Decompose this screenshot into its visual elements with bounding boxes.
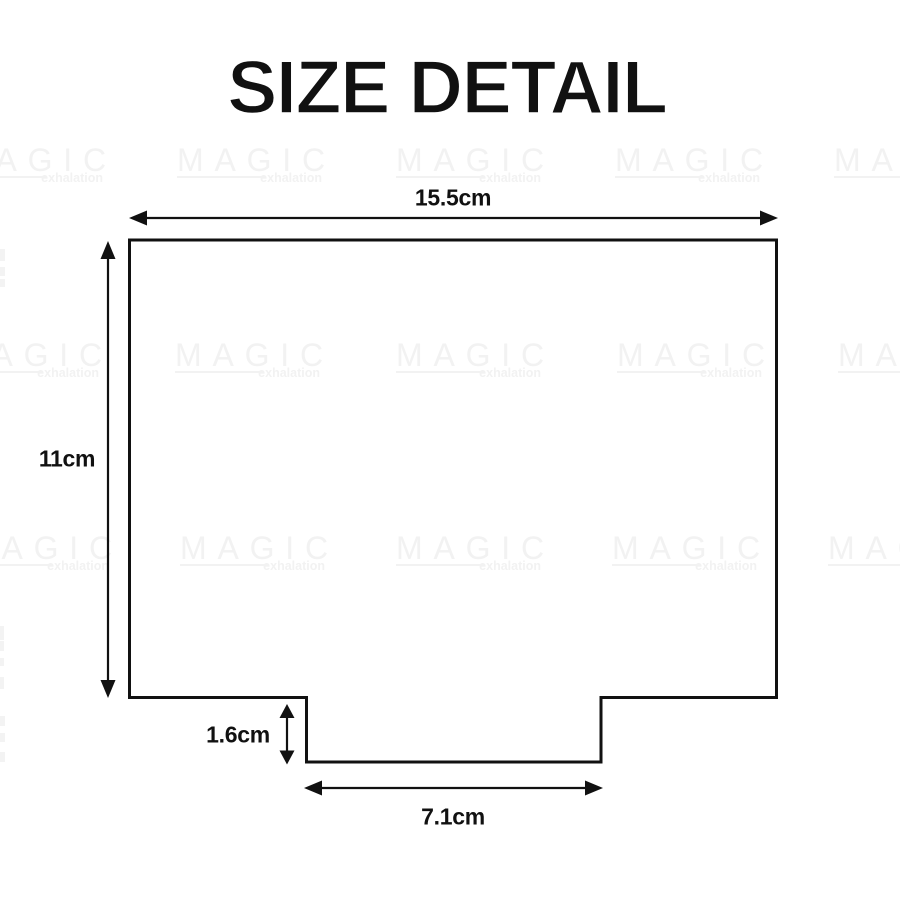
svg-text:11cm: 11cm [39,446,95,472]
svg-text:exhalation: exhalation [37,366,99,380]
svg-text:7.1cm: 7.1cm [421,804,485,830]
svg-text:15.5cm: 15.5cm [415,185,491,211]
svg-text:exhalation: exhalation [479,171,541,185]
svg-text:exhalation: exhalation [260,171,322,185]
svg-text:exhalation: exhalation [695,559,757,573]
svg-text:exhalation: exhalation [698,171,760,185]
svg-text:MAGIC: MAGIC [838,337,900,373]
svg-text:exhalation: exhalation [479,366,541,380]
svg-text:SIZE DETAIL: SIZE DETAIL [227,45,667,129]
svg-text:exhalation: exhalation [47,559,109,573]
svg-text:exhalation: exhalation [479,559,541,573]
svg-text:exhalation: exhalation [700,366,762,380]
svg-text:exhalation: exhalation [258,366,320,380]
svg-text:MAGIC: MAGIC [834,142,900,178]
svg-text:MAGIC: MAGIC [828,530,900,566]
svg-text:exhalation: exhalation [41,171,103,185]
svg-text:1.6cm: 1.6cm [206,722,270,748]
svg-text:exhalation: exhalation [263,559,325,573]
